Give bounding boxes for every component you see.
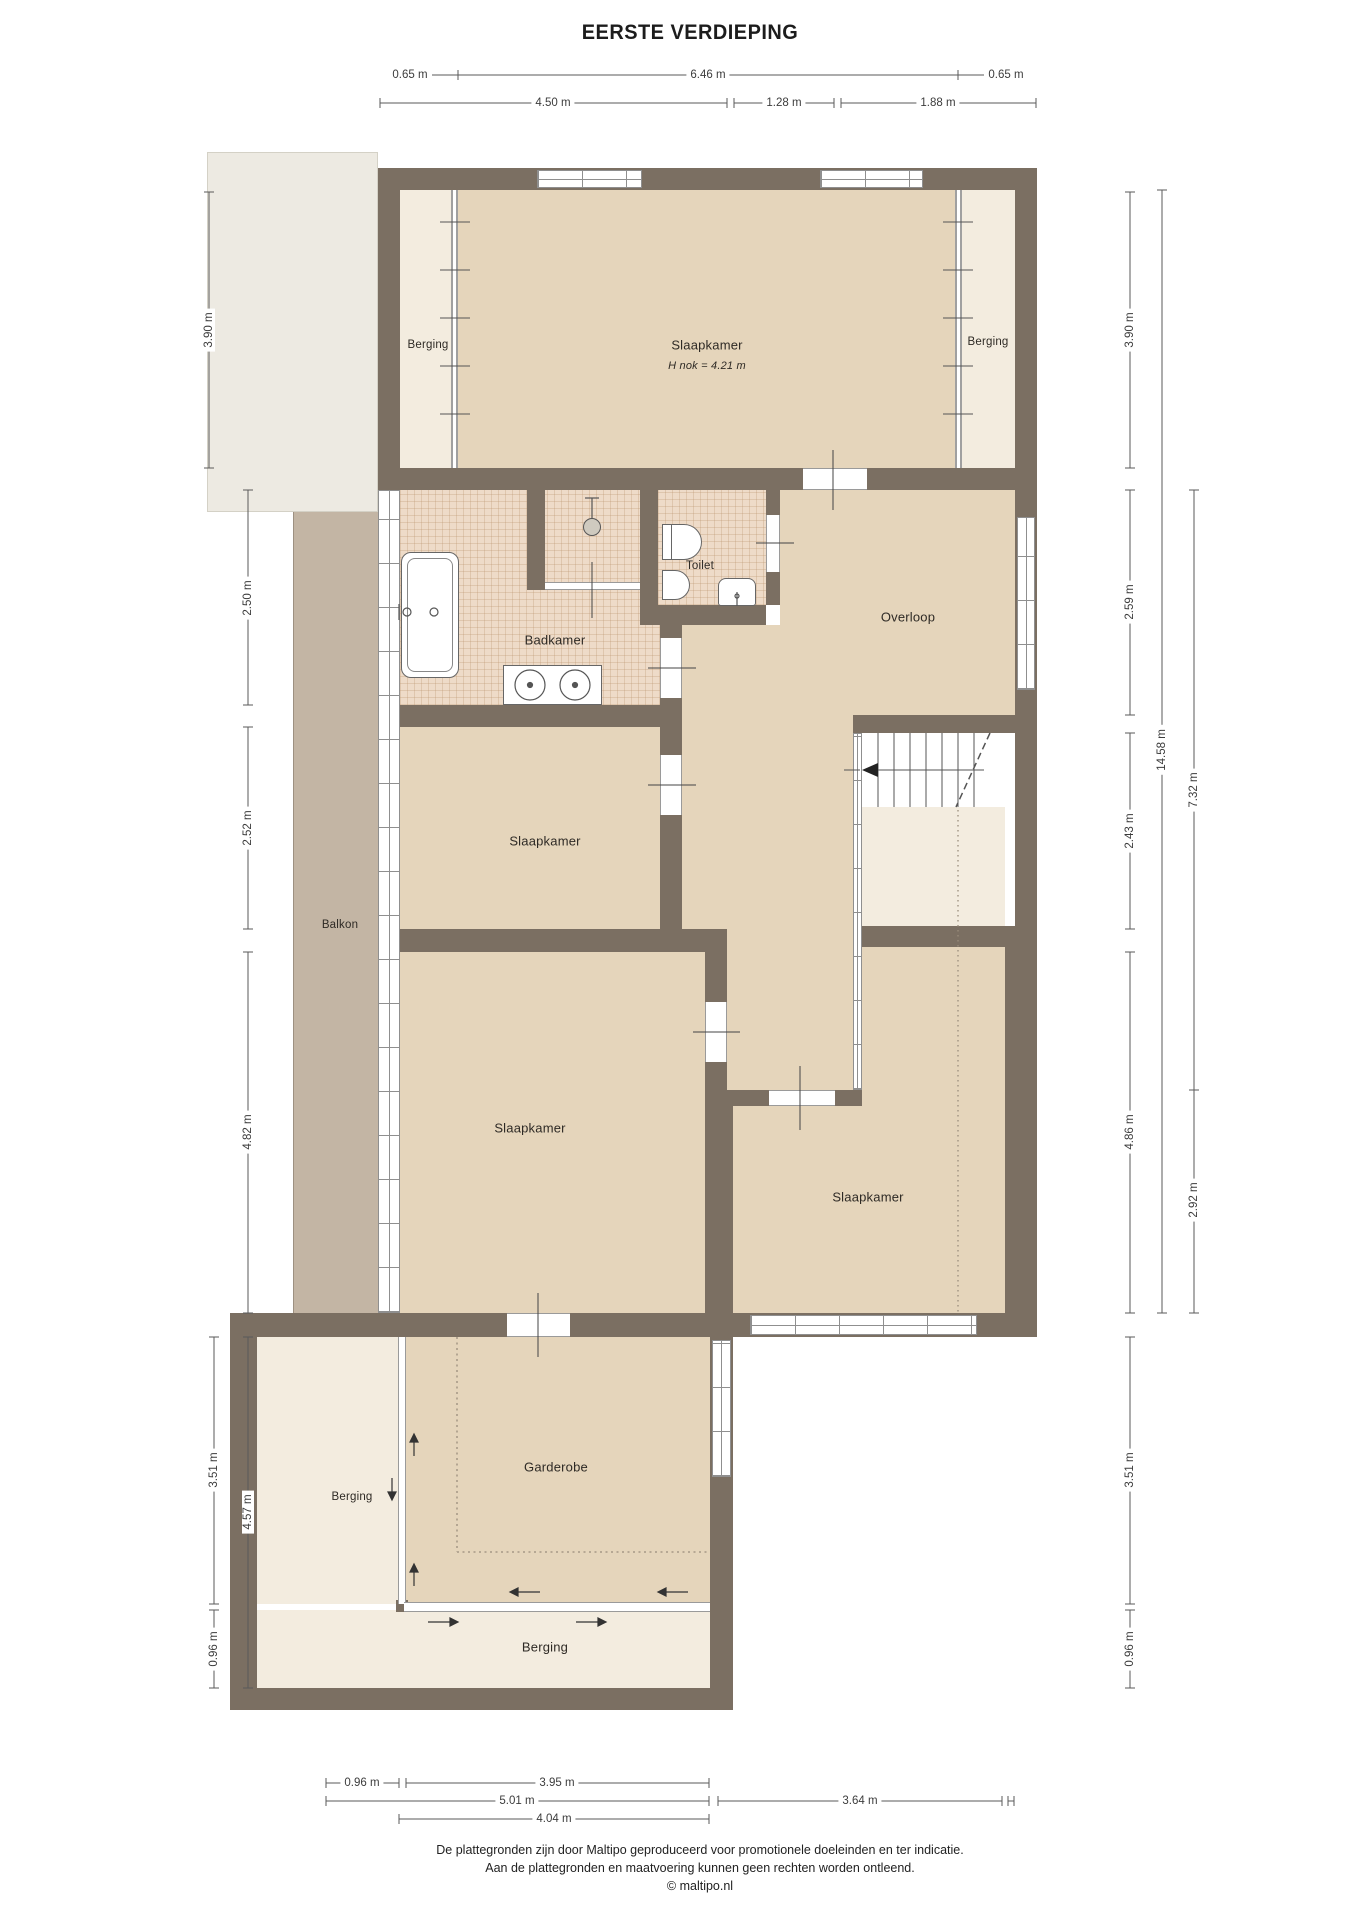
room-balkon-floor (293, 512, 378, 1313)
window-balkon-glazing (378, 490, 400, 1313)
door-badkamer (660, 638, 682, 698)
wall (378, 468, 1037, 490)
wall (382, 705, 682, 727)
dim-label: 5.01 m (495, 1795, 538, 1807)
room-label-berging-top-right: Berging (967, 336, 1008, 348)
hand-basin (718, 578, 756, 606)
dim-label: 2.59 m (1124, 580, 1136, 623)
vanity-double-sink (503, 665, 602, 705)
dim-label: 1.28 m (762, 97, 805, 109)
room-label-toilet: Toilet (686, 560, 714, 572)
bathtub (401, 552, 459, 678)
room-label-berging-top-left: Berging (407, 339, 448, 351)
dim-label: 14.58 m (1156, 725, 1168, 775)
door-slaapkamer-right (769, 1090, 835, 1106)
footer-copyright: © maltipo.nl (667, 1879, 733, 1893)
floor-plan-canvas: EERSTE VERDIEPING Slaapkamer H nok = 4.2… (0, 0, 1358, 1920)
dim-label: 3.90 m (203, 308, 215, 351)
stairs-floor (862, 733, 1005, 807)
wall-toilet-east-stub (766, 490, 780, 515)
window-slaapkamer-right-south (750, 1315, 977, 1335)
door-slaapkamer-top (803, 468, 867, 490)
wall (378, 168, 400, 490)
wall (378, 168, 1037, 190)
room-label-slaapkamer-right: Slaapkamer (832, 1190, 903, 1205)
dim-label: 3.64 m (838, 1795, 881, 1807)
dim-label: 4.04 m (532, 1813, 575, 1825)
room-label-slaapkamer-middle: Slaapkamer (509, 834, 580, 849)
dim-label: 3.90 m (1124, 308, 1136, 351)
dim-label: 2.50 m (242, 576, 254, 619)
window (537, 170, 642, 188)
room-berging-bottom-floor (257, 1610, 710, 1688)
dim-label: 2.52 m (242, 806, 254, 849)
dim-label: 0.96 m (1124, 1627, 1136, 1670)
room-label-garderobe: Garderobe (524, 1460, 588, 1475)
room-label-overloop: Overloop (881, 610, 935, 625)
wall (230, 1688, 733, 1710)
room-label-badkamer: Badkamer (525, 633, 586, 648)
shower-head-icon (583, 518, 601, 536)
room-note-hnok: H nok = 4.21 m (668, 360, 746, 372)
room-label-berging-bottom: Berging (522, 1640, 568, 1655)
sliding-door-garderobe-south (404, 1602, 710, 1612)
dim-label: 0.65 m (984, 69, 1027, 81)
dim-label: 0.65 m (388, 69, 431, 81)
window-overloop-east (1017, 517, 1035, 690)
wall-toilet-south (640, 605, 766, 625)
wall (862, 926, 1005, 947)
dim-label: 4.57 m (242, 1490, 254, 1533)
room-label-slaapkamer-left: Slaapkamer (494, 1121, 565, 1136)
door-toilet (766, 515, 780, 572)
room-label-slaapkamer-top: Slaapkamer (671, 338, 742, 353)
dim-label: 4.50 m (531, 97, 574, 109)
dim-label: 4.82 m (242, 1110, 254, 1153)
dim-label: 3.51 m (208, 1448, 220, 1491)
door-garderobe (507, 1313, 570, 1337)
dim-label: 0.96 m (340, 1777, 383, 1789)
dim-label: 0.96 m (208, 1627, 220, 1670)
wall-shower (527, 490, 545, 590)
glass-stairwell (853, 733, 862, 1090)
footer-disclaimer-line1: De plattegronden zijn door Maltipo gepro… (436, 1843, 963, 1857)
dim-label: 2.43 m (1124, 809, 1136, 852)
room-label-berging-bottom-left: Berging (331, 1491, 372, 1503)
room-slaapkamer-middle-floor (400, 727, 660, 929)
roof-area (207, 152, 378, 512)
page-title: EERSTE VERDIEPING (582, 21, 798, 45)
wall (378, 929, 727, 952)
room-label-balkon: Balkon (322, 919, 358, 931)
sliding-door-berging (398, 1337, 406, 1604)
room-slaapkamer-top-floor (400, 190, 1015, 468)
room-slaapkamer-right-floor-b (733, 1106, 1005, 1313)
dim-label: 3.51 m (1124, 1448, 1136, 1491)
shower-sliding-door (545, 582, 640, 590)
dim-label: 2.92 m (1188, 1178, 1200, 1221)
dim-label: 7.32 m (1188, 768, 1200, 811)
wall (711, 1090, 733, 1337)
door-slaapkamer-middle (660, 755, 682, 815)
dim-label: 6.46 m (686, 69, 729, 81)
door-slaapkamer-left (705, 1002, 727, 1062)
room-berging-bottom-left-floor (257, 1337, 402, 1604)
wall-toilet-east-stub (766, 572, 780, 605)
dim-label: 3.95 m (535, 1777, 578, 1789)
window (820, 170, 923, 188)
knee-wall-line (955, 190, 962, 468)
room-overloop-floor-b (682, 625, 853, 929)
stair-void-floor (862, 807, 1005, 926)
window-garderobe-east (712, 1340, 731, 1477)
room-overloop-floor-c (727, 929, 853, 1106)
room-berging-top-right-floor (959, 190, 1015, 468)
wall-stairwell-north (853, 715, 1015, 733)
dim-label: 4.86 m (1124, 1110, 1136, 1153)
room-berging-top-left-floor (400, 190, 455, 468)
footer-disclaimer-line2: Aan de plattegronden en maatvoering kunn… (485, 1861, 915, 1875)
dim-label: 1.88 m (916, 97, 959, 109)
knee-wall-line (451, 190, 458, 468)
wall-east (1005, 926, 1037, 1337)
